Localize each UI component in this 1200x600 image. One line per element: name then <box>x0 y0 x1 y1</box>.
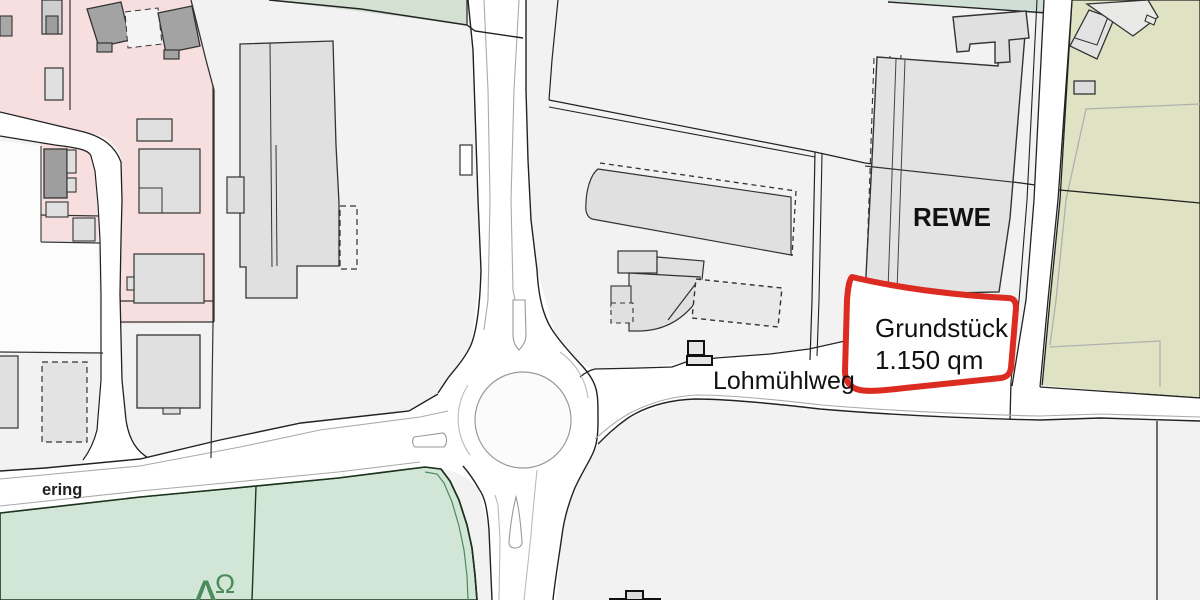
svg-text:REWE: REWE <box>913 202 991 232</box>
svg-text:1.150 qm: 1.150 qm <box>875 345 983 375</box>
svg-text:ering: ering <box>42 481 82 499</box>
svg-text:Lohmühlweg: Lohmühlweg <box>713 367 855 395</box>
svg-text:Grundstück: Grundstück <box>875 313 1009 343</box>
svg-text:Ω: Ω <box>215 569 235 599</box>
